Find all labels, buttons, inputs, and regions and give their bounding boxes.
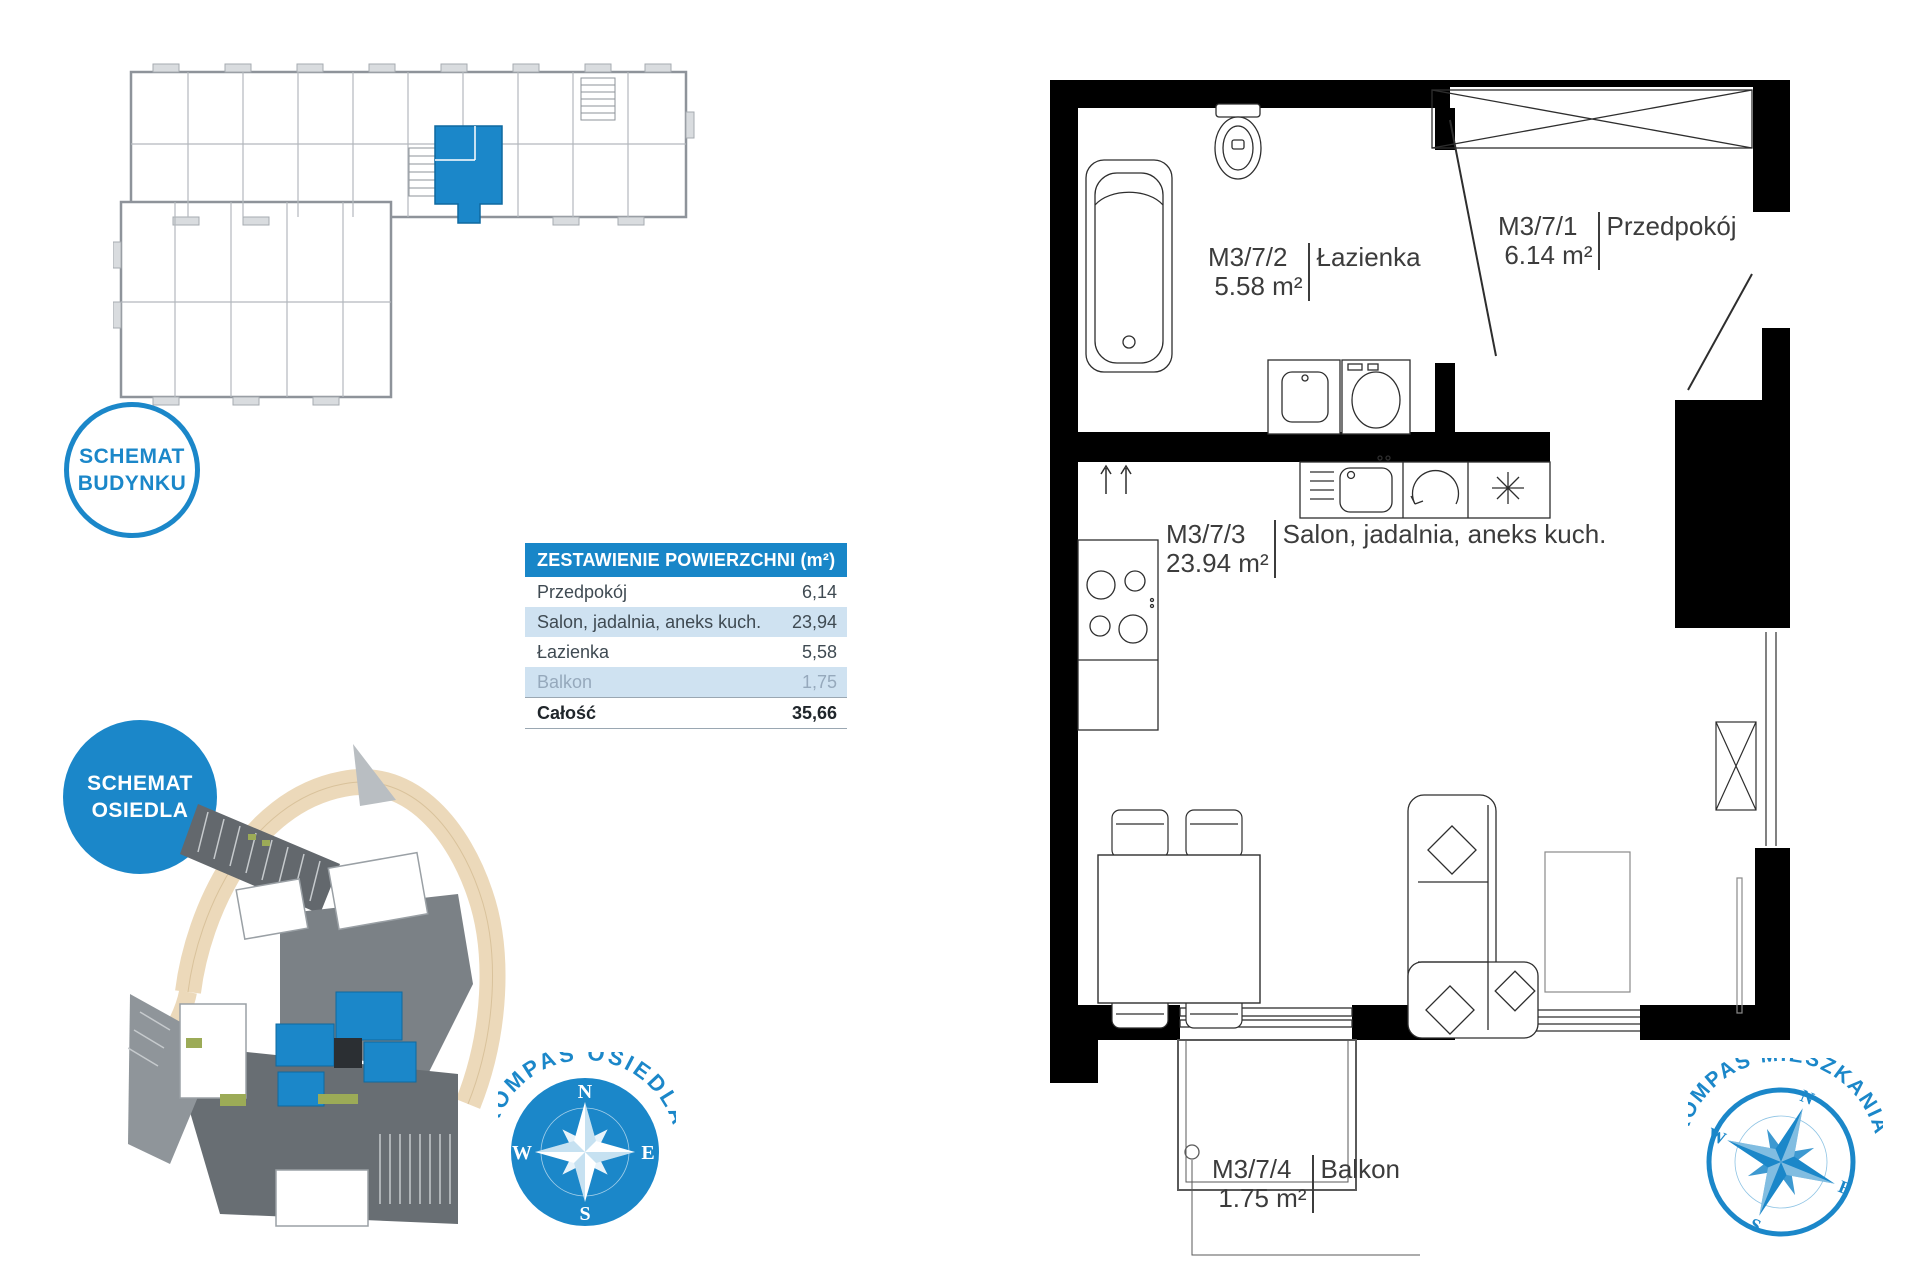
schemat-budynku-line1: SCHEMAT (79, 443, 185, 470)
table-row: Balkon 1,75 (525, 667, 847, 697)
side-cabinet (1716, 722, 1756, 810)
room-name: Salon, jadalnia, aneks kuch. (1276, 520, 1607, 549)
estate-dark-core (334, 1038, 362, 1068)
compass-e: E (641, 1142, 654, 1164)
bathroom-door-swing (1450, 120, 1496, 356)
table-title: ZESTAWIENIE POWIERZCHNI (m²) (525, 543, 847, 577)
cooktop (1078, 540, 1158, 730)
bathroom-sink (1268, 360, 1340, 434)
building-schematic (113, 52, 698, 412)
room-id: M3/7/1 (1498, 212, 1598, 241)
table-row: Przedpokój 6,14 (525, 577, 847, 607)
label-hall: M3/7/1 6.14 m² Przedpokój (1498, 212, 1737, 270)
compass-s: S (579, 1203, 590, 1225)
room-id: M3/7/4 (1212, 1155, 1312, 1184)
wardrobe (1432, 90, 1752, 148)
compass-n: N (578, 1081, 593, 1103)
kitchen-counter (1300, 456, 1550, 518)
compass-w: W (512, 1142, 532, 1164)
washing-machine (1342, 360, 1410, 434)
room-id: M3/7/3 (1166, 520, 1274, 549)
vent-arrows (1101, 466, 1131, 494)
table-row: Łazienka 5,58 (525, 637, 847, 667)
room-area: 1.75 m² (1212, 1184, 1312, 1213)
table-total-row: Całość 35,66 (525, 697, 847, 729)
room-name: Balkon (1314, 1155, 1401, 1184)
entry-door-swing (1688, 274, 1752, 390)
kompas-osiedla: N E S W KOMPAS OSIEDLA (498, 1052, 676, 1247)
room-area: 6.14 m² (1498, 241, 1598, 270)
table-row: Salon, jadalnia, aneks kuch. 23,94 (525, 607, 847, 637)
coffee-table (1545, 852, 1630, 992)
area-summary-table: ZESTAWIENIE POWIERZCHNI (m²) Przedpokój … (525, 543, 847, 729)
room-area: 5.58 m² (1208, 272, 1308, 301)
label-bathroom: M3/7/2 5.58 m² Łazienka (1208, 243, 1421, 301)
building-outline (121, 72, 686, 397)
radiator (1737, 878, 1742, 1013)
estate-map (128, 742, 508, 1247)
schemat-budynku-badge: SCHEMAT BUDYNKU (64, 402, 200, 538)
dining-table (1098, 855, 1260, 1003)
bathtub (1086, 160, 1172, 372)
label-balcony: M3/7/4 1.75 m² Balkon (1212, 1155, 1400, 1213)
room-name: Przedpokój (1600, 212, 1737, 241)
label-living: M3/7/3 23.94 m² Salon, jadalnia, aneks k… (1166, 520, 1606, 578)
toilet (1215, 104, 1261, 179)
room-name: Łazienka (1310, 243, 1421, 272)
sofa (1408, 795, 1538, 1038)
side-window (1766, 632, 1776, 846)
schemat-budynku-line2: BUDYNKU (78, 470, 187, 497)
room-area: 23.94 m² (1166, 549, 1274, 578)
room-id: M3/7/2 (1208, 243, 1308, 272)
fridge-arc (1413, 471, 1459, 504)
hob-star (1492, 472, 1524, 504)
